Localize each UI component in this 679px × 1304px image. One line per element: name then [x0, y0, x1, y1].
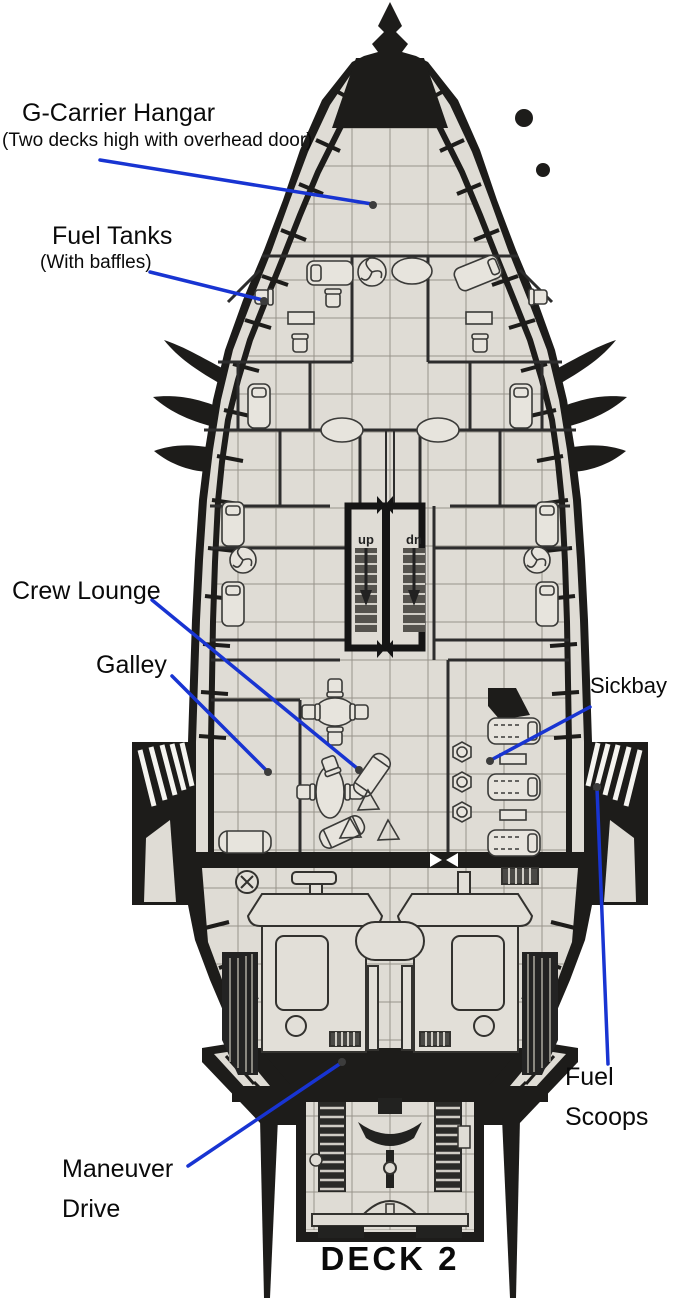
hull-bump: [515, 109, 533, 127]
fin-icon: [153, 396, 218, 428]
chair-icon: [302, 704, 320, 720]
sofa-icon: [219, 831, 271, 853]
label-fuel-scoops-2: Scoops: [565, 1104, 648, 1130]
bed-icon: [222, 502, 244, 546]
fan-icon: [230, 547, 256, 573]
stair-up-label: up: [358, 532, 374, 547]
table-icon: [417, 418, 459, 442]
hex-chair-icon: [453, 802, 471, 822]
chair-icon: [327, 727, 343, 745]
hull-bump: [536, 163, 550, 177]
fin-icon: [154, 445, 212, 472]
bed-icon: [307, 261, 353, 285]
desk-icon: [466, 312, 492, 324]
chair-icon: [297, 784, 315, 800]
bed-icon: [536, 502, 558, 546]
label-sickbay: Sickbay: [590, 674, 667, 697]
label-fuel-tanks-title: Fuel Tanks: [52, 223, 172, 249]
label-hangar-title: G-Carrier Hangar: [22, 100, 215, 126]
chair-icon: [325, 289, 341, 307]
bed-icon: [536, 582, 558, 626]
table-icon: [321, 418, 363, 442]
chair-icon: [529, 289, 547, 305]
chair-icon: [292, 334, 308, 352]
label-galley: Galley: [96, 652, 167, 678]
grille-icon: [330, 1032, 360, 1046]
label-fuel-tanks-sub: (With baffles): [40, 253, 152, 273]
fin-icon: [562, 396, 627, 428]
fin-icon: [164, 340, 224, 386]
fin-icon: [556, 340, 616, 386]
table-icon: [392, 258, 432, 284]
fan-icon: [524, 547, 550, 573]
tail-spike: [502, 1118, 520, 1298]
bed-icon: [222, 582, 244, 626]
fan-icon: [358, 258, 386, 286]
chair-icon: [350, 704, 368, 720]
table-icon: [315, 698, 355, 726]
tail-spike: [260, 1118, 278, 1298]
label-maneuver-2: Drive: [62, 1196, 120, 1222]
stairwell: up dn: [348, 496, 425, 658]
sickbay-bed-icon: [488, 718, 540, 744]
chair-icon: [472, 334, 488, 352]
bed-icon: [510, 384, 532, 428]
label-fuel-scoops-1: Fuel: [565, 1064, 614, 1090]
sickbay-bed-icon: [488, 830, 540, 856]
grille-icon: [420, 1032, 450, 1046]
deck-plan-figure: up dn: [0, 0, 679, 1304]
label-crew-lounge: Crew Lounge: [12, 578, 161, 604]
desk-icon: [288, 312, 314, 324]
label-maneuver-1: Maneuver: [62, 1156, 173, 1182]
bed-icon: [248, 384, 270, 428]
label-hangar-sub: (Two decks high with overhead door): [2, 131, 313, 151]
deck-title: DECK 2: [280, 1240, 500, 1278]
sickbay-bed-icon: [488, 774, 540, 800]
chair-icon: [327, 679, 343, 697]
fin-icon: [568, 445, 626, 472]
hex-chair-icon: [453, 772, 471, 792]
hex-chair-icon: [453, 742, 471, 762]
stair-down-label: dn: [406, 532, 422, 547]
